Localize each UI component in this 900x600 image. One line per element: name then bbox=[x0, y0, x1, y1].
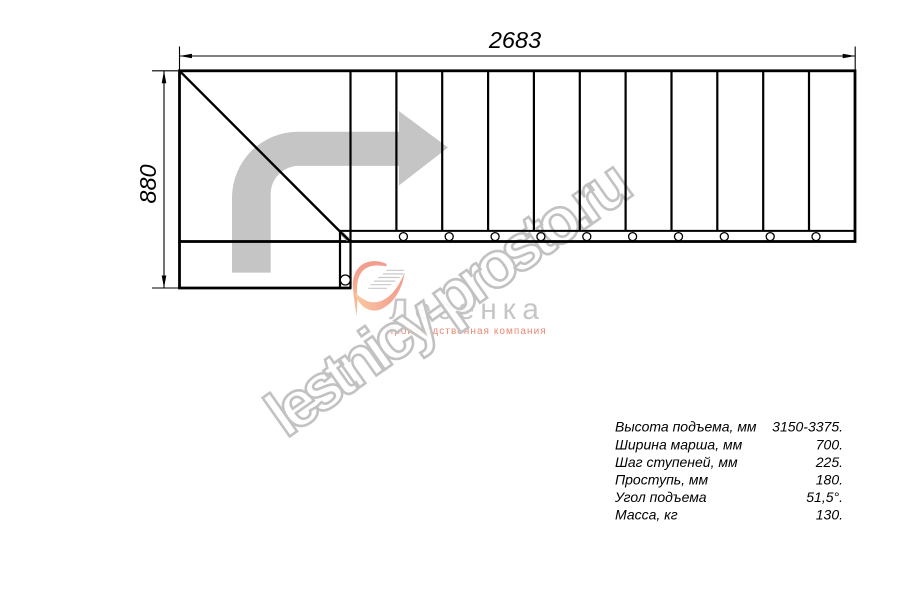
svg-text:Высота подъема, мм: Высота подъема, мм bbox=[615, 419, 757, 435]
svg-text:130.: 130. bbox=[816, 507, 843, 523]
svg-text:880: 880 bbox=[135, 164, 161, 203]
svg-text:Ширина марша, мм: Ширина марша, мм bbox=[615, 436, 743, 452]
svg-text:Шаг ступеней, мм: Шаг ступеней, мм bbox=[615, 454, 738, 470]
svg-text:Проступь, мм: Проступь, мм bbox=[615, 471, 709, 487]
svg-text:Угол подъема: Угол подъема bbox=[614, 489, 707, 505]
svg-text:Масса, кг: Масса, кг bbox=[615, 507, 678, 523]
svg-text:3150-3375.: 3150-3375. bbox=[772, 419, 843, 435]
svg-text:225.: 225. bbox=[815, 454, 843, 470]
svg-text:700.: 700. bbox=[816, 436, 843, 452]
svg-text:2683: 2683 bbox=[488, 27, 541, 53]
svg-text:51,5°.: 51,5°. bbox=[806, 489, 843, 505]
svg-text:180.: 180. bbox=[816, 471, 843, 487]
